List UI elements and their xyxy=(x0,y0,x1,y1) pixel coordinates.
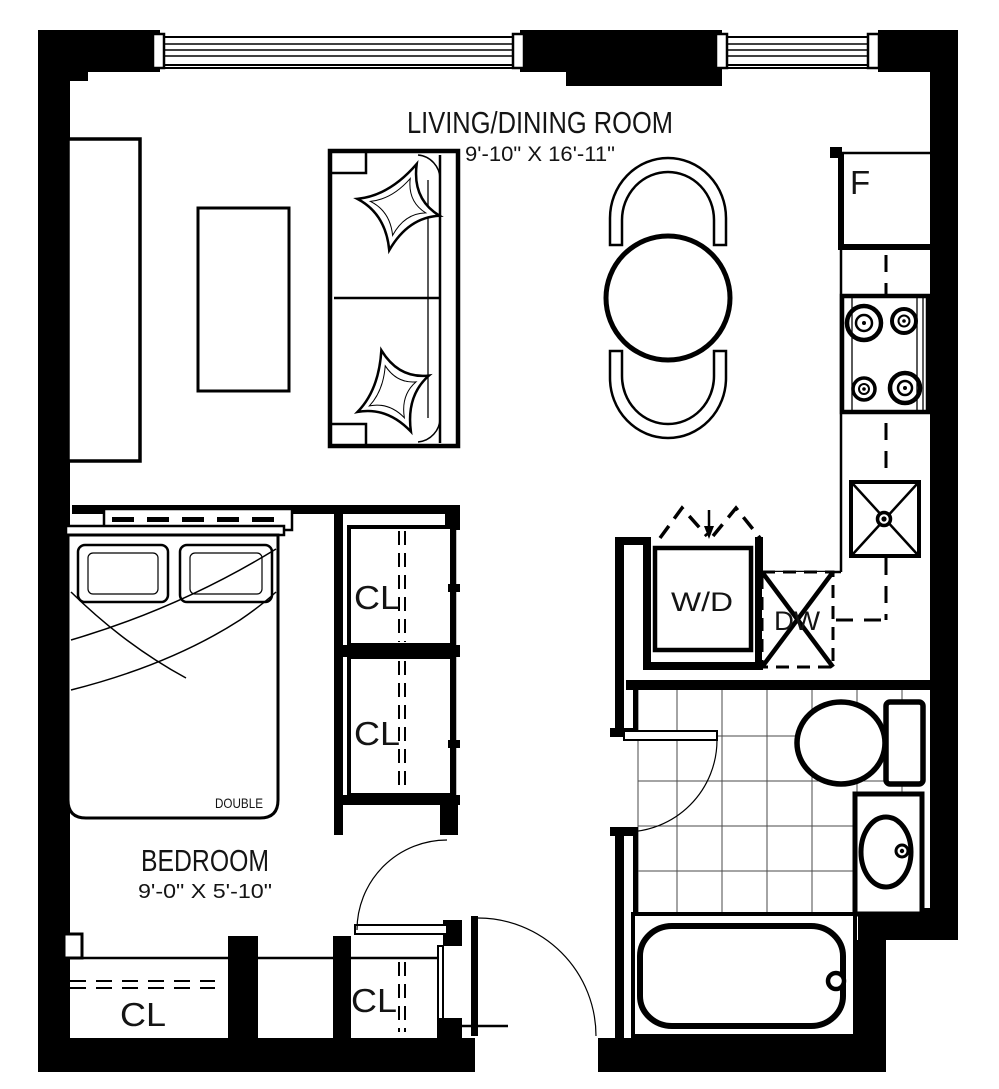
wall-right xyxy=(930,30,958,940)
closet-label: CL xyxy=(120,996,166,1033)
wall-top-left-step xyxy=(70,72,88,81)
kitchen xyxy=(763,147,930,620)
floor-plan-drawing: LIVING/DINING ROOM 9'-10" X 16'-11" BEDR… xyxy=(0,0,999,1089)
dining-table xyxy=(606,236,730,360)
dining-chair xyxy=(610,158,726,245)
coffee-table xyxy=(198,208,289,391)
door-leaf xyxy=(355,925,447,934)
windows xyxy=(153,34,879,68)
window-jamb xyxy=(716,34,727,68)
closet-label: CL xyxy=(354,579,400,616)
door-swing-arc xyxy=(357,840,447,930)
tub-basin xyxy=(640,926,843,1026)
arrow-head-icon xyxy=(704,526,714,539)
closets-upper xyxy=(334,509,460,835)
wall-pillar xyxy=(228,936,258,1038)
window-jamb xyxy=(868,34,879,68)
fridge xyxy=(830,147,930,250)
bathroom-top-wall xyxy=(626,680,930,690)
room-title-bedroom: BEDROOM xyxy=(141,843,269,878)
closet-label: CL xyxy=(351,982,397,1019)
sofa xyxy=(330,148,458,446)
door-swing-arc xyxy=(625,740,717,832)
pillow xyxy=(78,545,168,602)
door-jamb xyxy=(437,1018,462,1038)
door-leaf xyxy=(471,916,478,1036)
washer-dryer-label: W/D xyxy=(671,587,733,617)
hall-wall xyxy=(615,835,624,1038)
window-left xyxy=(153,34,524,68)
room-dims-living: 9'-10" X 16'-11" xyxy=(465,143,615,166)
bifold-door-icon xyxy=(660,508,707,538)
room-dims-bedroom: 9'-0" X 5'-10" xyxy=(138,881,272,903)
toilet xyxy=(797,702,923,784)
window-right xyxy=(716,34,879,68)
wall-top-middle-notch xyxy=(566,72,722,86)
hall-wall xyxy=(615,545,624,737)
window-jamb xyxy=(153,34,164,68)
wall-bottom-right xyxy=(598,1038,886,1072)
dishwasher-label: DW xyxy=(774,606,821,636)
wall-bottom-left xyxy=(38,1038,475,1072)
door-swing-arc xyxy=(478,918,596,1036)
fridge-label: F xyxy=(850,164,870,201)
wall-top-middle xyxy=(520,30,722,72)
bathtub xyxy=(633,914,855,1036)
toilet-tank xyxy=(886,702,923,784)
room-title-living: LIVING/DINING ROOM xyxy=(407,105,673,140)
bed-size-label: DOUBLE xyxy=(215,795,263,811)
wall-left xyxy=(38,30,70,1072)
floor-plan: LIVING/DINING ROOM 9'-10" X 16'-11" BEDR… xyxy=(0,0,999,1089)
vanity-sink xyxy=(855,794,922,914)
stove xyxy=(842,296,928,412)
toilet-bowl xyxy=(797,702,885,784)
bedroom-door xyxy=(355,840,447,934)
shelf-unit xyxy=(68,139,140,461)
wall-bath-lower-right xyxy=(855,940,886,1072)
dining-chair xyxy=(610,351,726,438)
door-leaf xyxy=(624,731,717,740)
window-jamb xyxy=(513,34,524,68)
dining-set xyxy=(606,158,730,438)
entry-door xyxy=(445,916,596,1036)
bedroom xyxy=(66,526,284,818)
door-jamb xyxy=(64,934,82,958)
tub-drain-icon xyxy=(828,973,844,989)
closet-label: CL xyxy=(354,715,400,752)
bed xyxy=(68,535,278,818)
bifold-door-icon xyxy=(713,508,760,538)
living-room xyxy=(68,139,730,461)
kitchen-sink xyxy=(851,482,919,556)
